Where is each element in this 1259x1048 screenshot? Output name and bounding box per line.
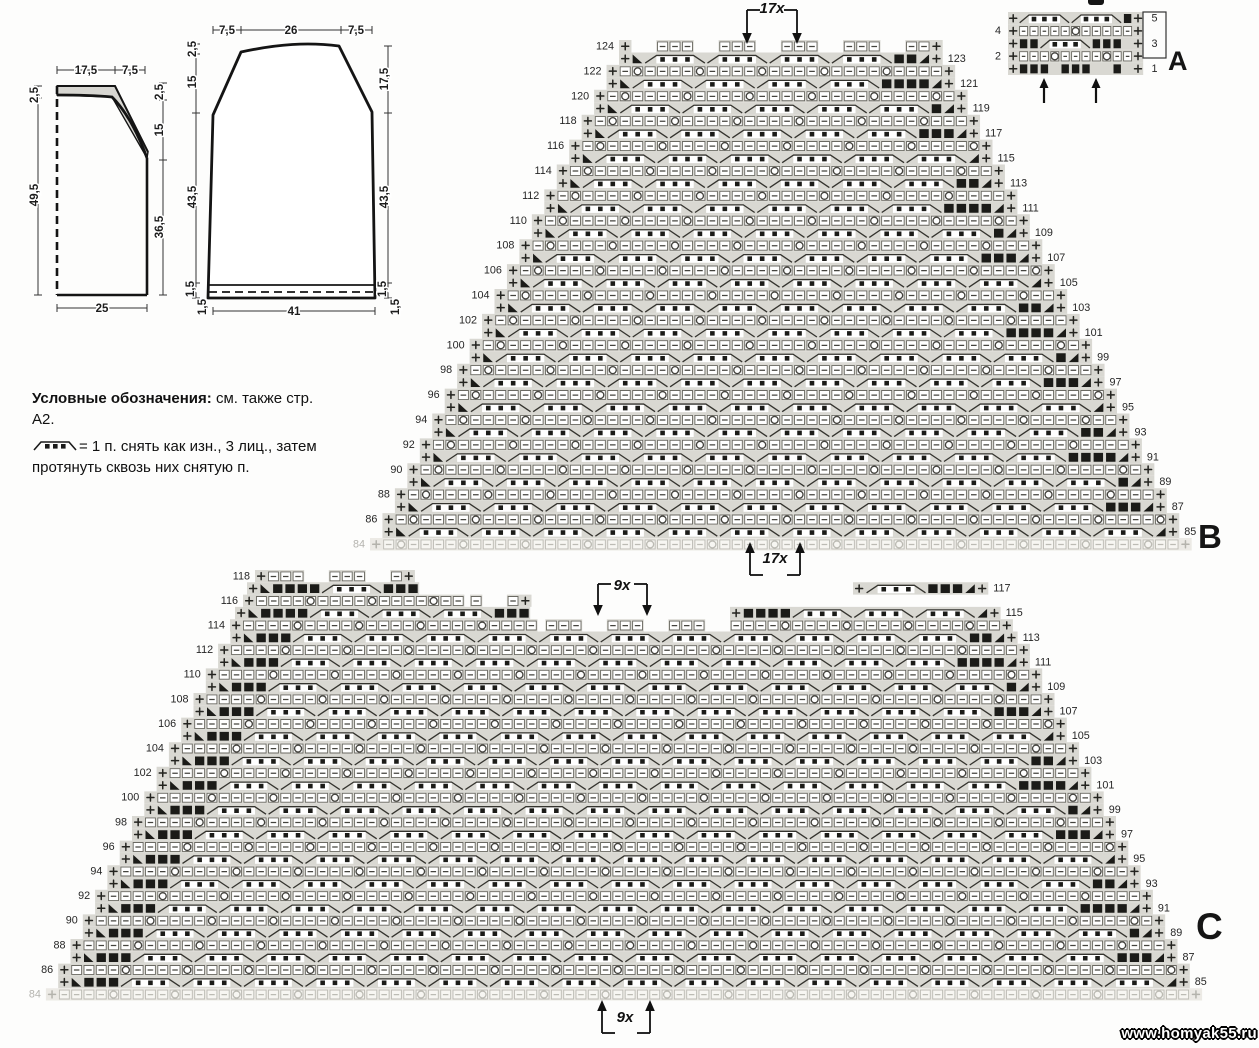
row-number: 104 (146, 743, 164, 755)
row-number: 111 (1035, 656, 1051, 668)
row-number: 5 (1151, 13, 1157, 25)
repeat-marker-c-top: 9x (588, 578, 664, 618)
legend-symbol-row: = 1 п. снять как изн., 3 лиц., затем про… (32, 436, 362, 478)
row-number: 91 (1147, 451, 1159, 463)
row-number: 92 (78, 890, 90, 902)
row-number: 107 (1047, 252, 1065, 264)
row-number: 88 (378, 489, 390, 501)
row-number: 102 (134, 767, 152, 779)
row-number: 118 (559, 115, 576, 127)
row-number: 113 (1023, 632, 1040, 644)
row-number: 99 (1109, 804, 1121, 816)
chart-b: 1241231221211201191181171161151141131121… (353, 40, 1196, 550)
row-number: 93 (1134, 426, 1146, 438)
repeat-label: 17x (750, 550, 800, 567)
dim-label: 15 (154, 123, 166, 136)
row-number: 115 (998, 153, 1015, 165)
row-number: 106 (158, 718, 176, 730)
row-number: 104 (471, 289, 489, 301)
legend-heading-bold: Условные обозначения: (32, 390, 212, 407)
row-number: 87 (1172, 501, 1184, 513)
row-number: 110 (510, 215, 527, 227)
row-number: 1 (1151, 63, 1157, 75)
row-number: 114 (535, 165, 552, 177)
row-number: 87 (1183, 952, 1195, 964)
row-number: 93 (1146, 878, 1158, 890)
row-number: 95 (1133, 853, 1145, 865)
dim-label: 43,5 (379, 185, 391, 208)
dim-label: 1,5 (377, 280, 389, 297)
dim-label: 43,5 (187, 185, 199, 208)
legend-heading-rest: см. также стр. (212, 390, 313, 407)
dim-label: 26 (285, 25, 298, 37)
row-number: 86 (365, 514, 377, 526)
repeat-label: 9x (596, 577, 648, 594)
dim-label: 7,5 (348, 25, 365, 37)
row-number: 108 (170, 693, 188, 705)
row-number: 117 (993, 583, 1010, 595)
row-number: 115 (1006, 607, 1023, 619)
row-number: 94 (415, 414, 427, 426)
row-number: 84 (29, 989, 41, 1001)
repeat-marker-c-bottom: 9x (592, 1000, 664, 1040)
row-number: 123 (948, 53, 966, 65)
row-number: 108 (496, 240, 514, 252)
schematic-front-piece: 7,5 26 7,5 2,5 15 43,5 1,5 1,5 17,5 43,5… (183, 15, 413, 330)
row-number: 113 (1010, 177, 1027, 189)
row-number: 101 (1096, 779, 1114, 791)
row-number: 92 (403, 439, 415, 451)
row-number: 90 (66, 915, 78, 927)
row-number: 117 (985, 128, 1002, 140)
row-number: 111 (1022, 202, 1038, 214)
row-number: 118 (233, 570, 250, 582)
dim-label: 17,5 (379, 67, 391, 90)
row-number: 107 (1060, 706, 1078, 718)
row-number: 90 (390, 464, 402, 476)
legend-symbol-text: = 1 п. снять как изн., 3 лиц., затем (79, 438, 317, 455)
dim-label: 41 (288, 306, 301, 318)
row-number: 102 (459, 314, 477, 326)
dim-label: 15 (187, 75, 199, 88)
outline (208, 44, 375, 298)
row-number: 98 (115, 816, 127, 828)
dim-label: 2,5 (29, 86, 41, 103)
chart-a: 53142 (995, 12, 1166, 103)
chart-b-letter: B (1198, 518, 1222, 556)
repeat-marker-b-bottom: 17x (740, 542, 818, 582)
schematic-back-piece: 17,5 7,5 2,5 49,5 2,5 15 36,5 25 (20, 55, 190, 325)
row-number: 2 (995, 50, 1001, 62)
dim-label: 17,5 (75, 65, 98, 77)
row-number: 109 (1047, 681, 1065, 693)
row-number: 122 (584, 65, 602, 77)
neck-curve (57, 95, 147, 158)
row-number: 109 (1035, 227, 1053, 239)
row-number: 89 (1159, 476, 1171, 488)
legend-line2: А2. (32, 411, 55, 428)
dim-label: 36,5 (154, 215, 166, 238)
row-number: 103 (1072, 302, 1090, 314)
chart-a-letter: A (1168, 46, 1188, 77)
row-number: 97 (1121, 829, 1133, 841)
repeat-label: 17x (747, 0, 797, 17)
row-number: 101 (1085, 327, 1103, 339)
row-number: 103 (1084, 755, 1102, 767)
dim-label: 7,5 (219, 25, 236, 37)
row-number: 96 (428, 389, 440, 401)
row-number: 105 (1072, 730, 1090, 742)
row-number: 86 (41, 964, 53, 976)
row-number: 97 (1110, 377, 1122, 389)
repeat-marker-b-top: 17x (737, 6, 815, 50)
row-number: 85 (1184, 526, 1196, 538)
row-number: 124 (596, 40, 614, 52)
scanned-knitting-pattern-page: { "page": { "watermark": "www.homyak55.r… (0, 0, 1259, 1048)
dim-label: 49,5 (29, 183, 41, 206)
row-number: 114 (208, 620, 225, 632)
row-number: 4 (995, 25, 1001, 37)
row-number: 85 (1195, 976, 1207, 988)
row-number: 110 (184, 669, 201, 681)
row-number: 88 (53, 939, 65, 951)
row-number: 116 (221, 595, 238, 607)
row-number: 95 (1122, 402, 1134, 414)
dim-label: 2,5 (154, 83, 166, 100)
row-number: 119 (973, 103, 990, 115)
dim-label: 1,5 (197, 298, 209, 315)
scan-artifact (1088, 0, 1104, 5)
row-number: 3 (1151, 38, 1157, 50)
chart-c: 1181171161151141131121111101091081071061… (29, 570, 1207, 1001)
legend-symbol-text2: протянуть сквозь них снятую п. (32, 459, 250, 476)
row-number: 116 (547, 140, 564, 152)
row-number: 120 (571, 90, 589, 102)
dim-label: 7,5 (122, 65, 139, 77)
row-number: 96 (103, 841, 115, 853)
row-number: 89 (1170, 927, 1182, 939)
watermark: www.homyak55.ru (1121, 1025, 1257, 1042)
row-number: 106 (484, 265, 502, 277)
row-number: 121 (960, 78, 978, 90)
dim-label: 1,5 (390, 298, 402, 315)
dim-label: 2,5 (187, 40, 199, 57)
dim-label: 25 (96, 303, 109, 315)
row-number: 105 (1060, 277, 1078, 289)
legend-heading: Условные обозначения: см. также стр. А2. (32, 388, 362, 430)
dim-label: 1,5 (185, 280, 197, 297)
row-number: 98 (440, 364, 452, 376)
chart-c-letter: C (1196, 906, 1223, 948)
legend: Условные обозначения: см. также стр. А2.… (32, 388, 362, 484)
row-number: 84 (353, 538, 365, 550)
row-number: 91 (1158, 902, 1170, 914)
repeat-label: 9x (600, 1009, 650, 1026)
row-number: 100 (121, 792, 139, 804)
row-number: 99 (1097, 352, 1109, 364)
row-number: 112 (522, 190, 539, 202)
row-number: 112 (196, 644, 213, 656)
row-number: 100 (447, 339, 465, 351)
row-number: 94 (90, 866, 102, 878)
slip-stitch-symbol-icon (32, 439, 79, 452)
